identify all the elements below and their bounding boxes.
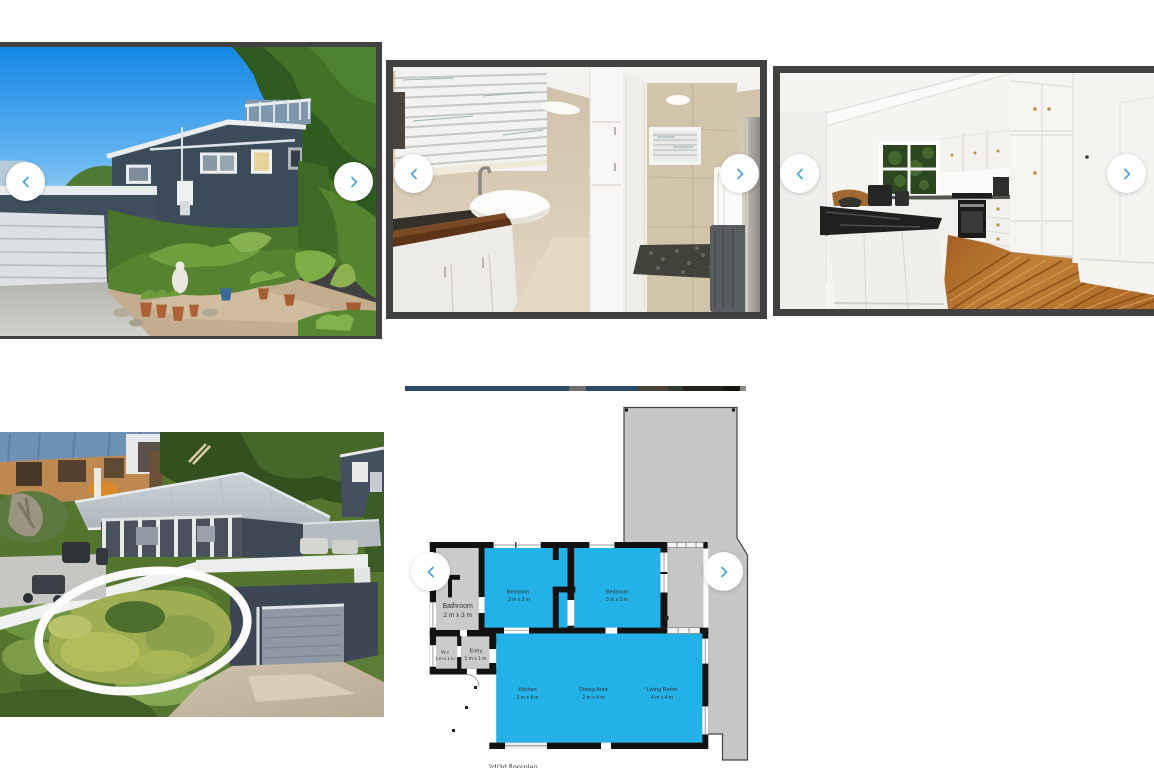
svg-text:3 m x 3 m: 3 m x 3 m xyxy=(508,597,530,603)
svg-text:2 m x 3 m: 2 m x 3 m xyxy=(443,612,472,619)
svg-text:Entry: Entry xyxy=(470,649,483,655)
svg-text:1 m x 1 m: 1 m x 1 m xyxy=(465,656,487,662)
svg-text:1 m x 1 m: 1 m x 1 m xyxy=(435,656,455,661)
svg-text:3 m x 4 m: 3 m x 4 m xyxy=(517,695,539,701)
svg-text:Bedroom: Bedroom xyxy=(606,590,629,596)
svg-text:Living Room: Living Room xyxy=(647,687,678,693)
svg-text:Kitchen: Kitchen xyxy=(518,687,536,693)
svg-text:Bedroom: Bedroom xyxy=(507,590,530,596)
svg-text:W.c: W.c xyxy=(441,650,450,656)
svg-text:Bathroom: Bathroom xyxy=(443,603,474,610)
svg-text:2 m x 4 m: 2 m x 4 m xyxy=(583,695,605,701)
svg-text:3 m x 3 m: 3 m x 3 m xyxy=(606,597,628,603)
svg-text:Dining Area: Dining Area xyxy=(579,687,608,693)
svg-text:2d/3d floorplan: 2d/3d floorplan xyxy=(488,763,538,768)
svg-text:4 m x 4 m: 4 m x 4 m xyxy=(651,695,673,701)
